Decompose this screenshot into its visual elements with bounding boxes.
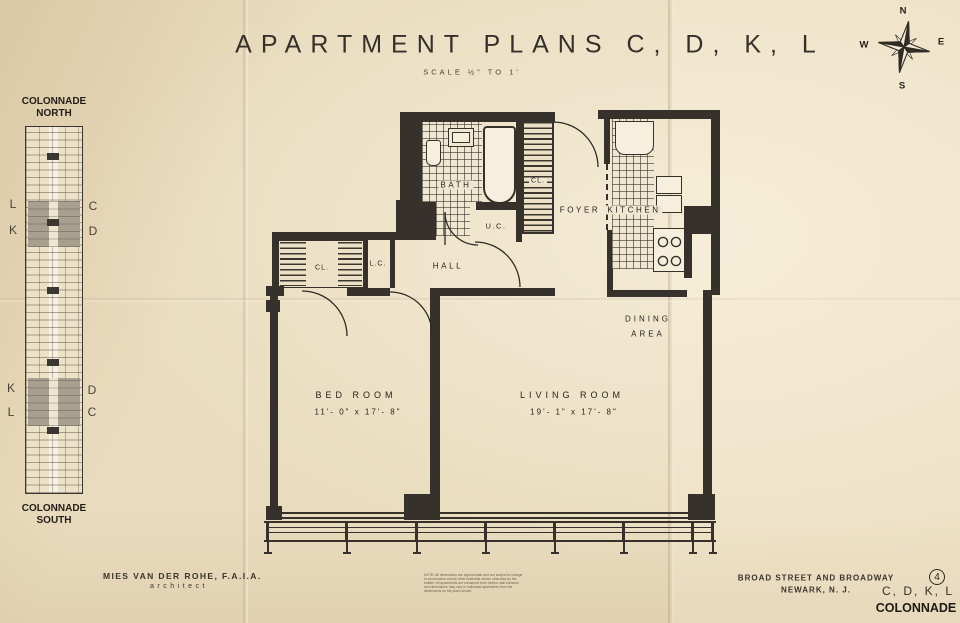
wall-segment	[598, 110, 720, 119]
scale-note: SCALE ½" TO 1'	[423, 68, 521, 77]
wall-segment	[400, 112, 422, 204]
compass-north-label: N	[900, 6, 907, 17]
wall-segment	[703, 290, 712, 518]
hall-label: HALL	[433, 262, 463, 271]
fold-crease	[668, 0, 674, 623]
compass-west-label: W	[860, 40, 869, 51]
door-swing-arcs	[0, 0, 960, 623]
wall-segment	[266, 300, 280, 312]
foyer-label: FOYER	[560, 206, 601, 215]
key-plan-unit-C: C	[89, 199, 98, 213]
utility-closet-label: U.C.	[486, 222, 507, 231]
building-name: COLONNADE	[876, 601, 957, 615]
linen-closet-label: L.C.	[370, 261, 387, 268]
wall-segment	[432, 288, 555, 296]
sheet-plan-letters: C, D, K, L	[882, 584, 954, 598]
balcony-rail	[264, 521, 716, 523]
key-plan-unit-K2: K	[7, 381, 15, 395]
wall-segment	[347, 288, 390, 296]
wall-segment	[684, 234, 692, 278]
bath-label: BATH	[438, 181, 473, 190]
toilet	[426, 140, 441, 166]
balcony-post	[711, 521, 714, 542]
kitchen-counter	[656, 176, 682, 194]
sheet-number-badge: 4	[929, 569, 945, 585]
compass-east-label: E	[938, 37, 944, 48]
bathtub	[483, 126, 516, 204]
fold-crease	[0, 298, 960, 302]
balcony-post	[691, 521, 694, 542]
dining-area-label: DINING	[625, 315, 671, 324]
refrigerator	[615, 121, 654, 155]
bath-doorway-tile	[436, 202, 470, 236]
window-wall-line	[276, 517, 706, 519]
kitchen-pass-through-line	[606, 164, 608, 230]
fold-panel-tint	[674, 0, 960, 623]
key-plan-north-title: COLONNADE NORTH	[18, 96, 90, 120]
architect-role: architect	[150, 583, 208, 590]
balcony-post	[622, 521, 625, 542]
living-room-label: LIVING ROOM	[520, 390, 624, 400]
balcony-rail	[268, 527, 714, 528]
address-line1: BROAD STREET AND BROADWAY	[738, 574, 894, 583]
dining-area-label2: AREA	[631, 330, 665, 339]
bedroom-label: BED ROOM	[315, 390, 396, 400]
hall-closet-label: CL.	[315, 265, 329, 272]
wall-segment	[274, 232, 398, 240]
compass-south-label: S	[899, 81, 905, 92]
balcony-post	[553, 521, 556, 542]
fold-crease	[243, 0, 248, 623]
balcony-post	[266, 521, 269, 542]
wall-partition	[430, 288, 440, 500]
stove	[653, 228, 685, 272]
sheet-title: APARTMENT PLANS C, D, K, L	[235, 31, 825, 60]
architect-name: MIES VAN DER ROHE, F.A.I.A.	[103, 571, 262, 581]
wall-segment	[607, 290, 687, 297]
key-plan-unit-D2: D	[88, 383, 97, 397]
key-plan-unit-K: K	[9, 223, 17, 237]
key-plan-unit-C2: C	[88, 405, 97, 419]
fine-print-note: NOTE: All dimensions are approximate and…	[424, 573, 524, 593]
bath-sink	[448, 128, 474, 147]
address-line2: NEWARK, N. J.	[781, 586, 851, 595]
living-room-dimensions: 19'- 1" x 17'- 8"	[530, 408, 618, 417]
key-plan-building	[25, 126, 83, 494]
balcony-post	[345, 521, 348, 542]
kitchen-label: KITCHEN	[605, 206, 662, 215]
key-plan-south-title: COLONNADE SOUTH	[18, 503, 90, 527]
window-wall-line	[276, 512, 706, 514]
wall-segment	[396, 200, 436, 240]
balcony-rail	[264, 540, 716, 542]
key-plan-highlight-south	[28, 378, 80, 426]
key-plan-unit-L2: L	[8, 405, 15, 419]
foyer-closet-label: CL.	[529, 178, 547, 185]
drawing-sheet: APARTMENT PLANS C, D, K, L SCALE ½" TO 1…	[0, 0, 960, 623]
sheet-number: 4	[934, 572, 940, 583]
balcony-post	[484, 521, 487, 542]
wall-segment	[604, 118, 610, 164]
balcony-post	[415, 521, 418, 542]
bedroom-dimensions: 11'- 0" x 17'- 8"	[314, 408, 401, 417]
key-plan-unit-D: D	[89, 224, 98, 238]
balcony-rail	[268, 532, 714, 533]
wall-segment	[270, 296, 278, 518]
wall-segment	[711, 110, 720, 295]
key-plan-unit-L: L	[10, 197, 17, 211]
